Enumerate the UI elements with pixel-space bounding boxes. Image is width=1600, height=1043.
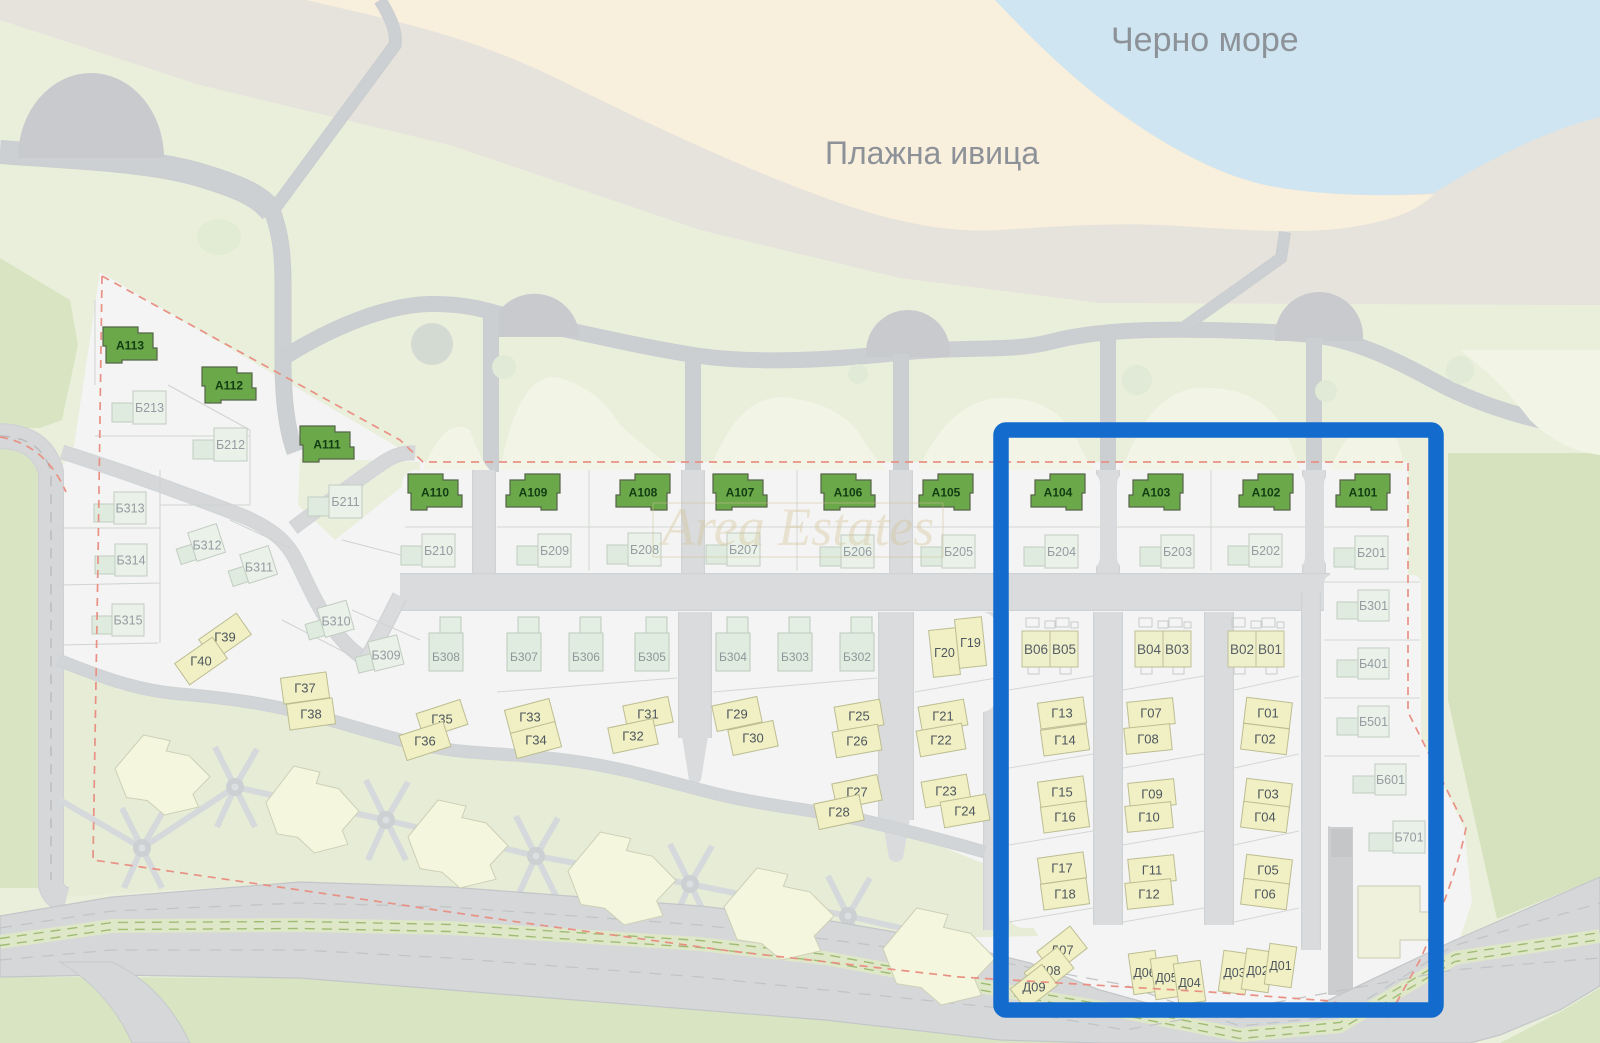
svg-text:Б501: Б501: [1359, 715, 1388, 729]
svg-text:Г24: Г24: [954, 804, 976, 819]
svg-text:Плажна ивица: Плажна ивица: [825, 135, 1039, 171]
svg-text:A110: A110: [421, 486, 449, 500]
svg-text:Б306: Б306: [572, 650, 600, 664]
svg-text:В02: В02: [1230, 642, 1254, 657]
svg-text:Б201: Б201: [1357, 546, 1386, 560]
svg-text:Г01: Г01: [1257, 706, 1279, 721]
svg-text:Г37: Г37: [294, 681, 316, 696]
svg-text:A113: A113: [116, 339, 144, 353]
svg-text:Г28: Г28: [828, 805, 850, 820]
svg-text:Г11: Г11: [1142, 863, 1163, 878]
svg-text:Г09: Г09: [1141, 787, 1163, 802]
svg-text:Г33: Г33: [519, 710, 541, 725]
svg-text:A102: A102: [1252, 486, 1281, 500]
svg-text:Г08: Г08: [1137, 732, 1159, 747]
svg-text:A101: A101: [1349, 486, 1378, 500]
svg-text:Area Estates: Area Estates: [659, 497, 934, 557]
svg-text:A104: A104: [1044, 486, 1073, 500]
svg-text:Б401: Б401: [1359, 657, 1388, 671]
svg-text:Б313: Б313: [115, 502, 144, 516]
svg-text:Б314: Б314: [116, 554, 145, 568]
svg-text:Б312: Б312: [192, 539, 221, 553]
svg-text:Г04: Г04: [1254, 810, 1276, 825]
svg-text:A108: A108: [629, 486, 658, 500]
svg-text:Д01: Д01: [1269, 959, 1291, 973]
svg-text:Б202: Б202: [1251, 544, 1280, 558]
svg-text:Б308: Б308: [432, 650, 460, 664]
svg-text:Б205: Б205: [944, 545, 973, 559]
svg-text:Г15: Г15: [1051, 785, 1073, 800]
svg-text:Б601: Б601: [1376, 773, 1405, 787]
svg-text:Г03: Г03: [1257, 787, 1279, 802]
svg-text:Г26: Г26: [846, 734, 868, 749]
svg-text:Г38: Г38: [300, 707, 322, 722]
svg-text:Б208: Б208: [630, 543, 659, 557]
svg-text:Г07: Г07: [1140, 706, 1162, 721]
svg-text:Г34: Г34: [525, 733, 547, 748]
svg-text:Г22: Г22: [930, 733, 952, 748]
svg-text:Г21: Г21: [932, 709, 954, 724]
svg-text:Б210: Б210: [424, 544, 453, 558]
svg-text:Б310: Б310: [321, 615, 350, 629]
svg-text:Б307: Б307: [510, 650, 538, 664]
svg-text:В03: В03: [1165, 642, 1189, 657]
svg-text:Б303: Б303: [781, 650, 809, 664]
svg-text:Б212: Б212: [216, 438, 245, 452]
svg-text:Г17: Г17: [1051, 861, 1073, 876]
svg-text:Г32: Г32: [622, 729, 644, 744]
svg-text:A111: A111: [313, 438, 341, 452]
svg-text:Б701: Б701: [1394, 831, 1423, 845]
svg-text:Г30: Г30: [742, 731, 764, 746]
svg-text:Б213: Б213: [135, 401, 164, 415]
svg-text:Г12: Г12: [1138, 887, 1160, 902]
svg-text:A112: A112: [215, 379, 243, 393]
svg-text:В04: В04: [1137, 642, 1162, 657]
svg-text:В01: В01: [1258, 642, 1282, 657]
svg-text:Г10: Г10: [1138, 810, 1160, 825]
svg-text:Г40: Г40: [190, 654, 212, 669]
svg-text:Б209: Б209: [540, 544, 569, 558]
svg-text:Б204: Б204: [1047, 545, 1076, 559]
svg-text:A105: A105: [932, 486, 961, 500]
svg-text:В05: В05: [1052, 642, 1076, 657]
svg-text:Г25: Г25: [848, 709, 870, 724]
svg-text:Б315: Б315: [113, 614, 142, 628]
svg-text:Г20: Г20: [934, 646, 955, 660]
svg-text:Г14: Г14: [1054, 733, 1076, 748]
svg-text:Д04: Д04: [1178, 976, 1200, 990]
svg-text:Г39: Г39: [214, 630, 236, 645]
svg-text:В06: В06: [1024, 642, 1048, 657]
svg-text:Г06: Г06: [1254, 887, 1276, 902]
svg-text:Черно море: Черно море: [1111, 21, 1299, 59]
svg-text:A103: A103: [1142, 486, 1171, 500]
svg-text:Б311: Б311: [245, 561, 273, 575]
svg-text:Г36: Г36: [414, 734, 436, 749]
svg-text:A109: A109: [519, 486, 548, 500]
svg-text:Г05: Г05: [1257, 863, 1279, 878]
svg-text:Б301: Б301: [1359, 599, 1388, 613]
svg-text:Г29: Г29: [726, 707, 748, 722]
svg-text:Б304: Б304: [719, 650, 747, 664]
svg-text:Б309: Б309: [371, 649, 400, 663]
svg-text:Б211: Б211: [331, 495, 359, 509]
svg-text:Б305: Б305: [638, 650, 666, 664]
svg-text:Б203: Б203: [1163, 545, 1192, 559]
svg-text:Г19: Г19: [960, 636, 981, 650]
svg-text:Г23: Г23: [935, 784, 957, 799]
svg-text:Г18: Г18: [1054, 887, 1076, 902]
svg-text:Г13: Г13: [1051, 706, 1073, 721]
svg-text:Г02: Г02: [1254, 732, 1276, 747]
svg-text:Г16: Г16: [1054, 810, 1076, 825]
svg-text:Б302: Б302: [843, 650, 871, 664]
